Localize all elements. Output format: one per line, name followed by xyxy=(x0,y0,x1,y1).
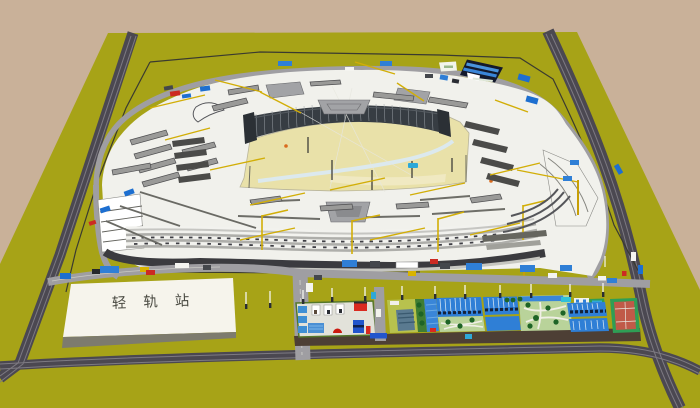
svg-text:轻轨站: 轻轨站 xyxy=(112,292,207,312)
